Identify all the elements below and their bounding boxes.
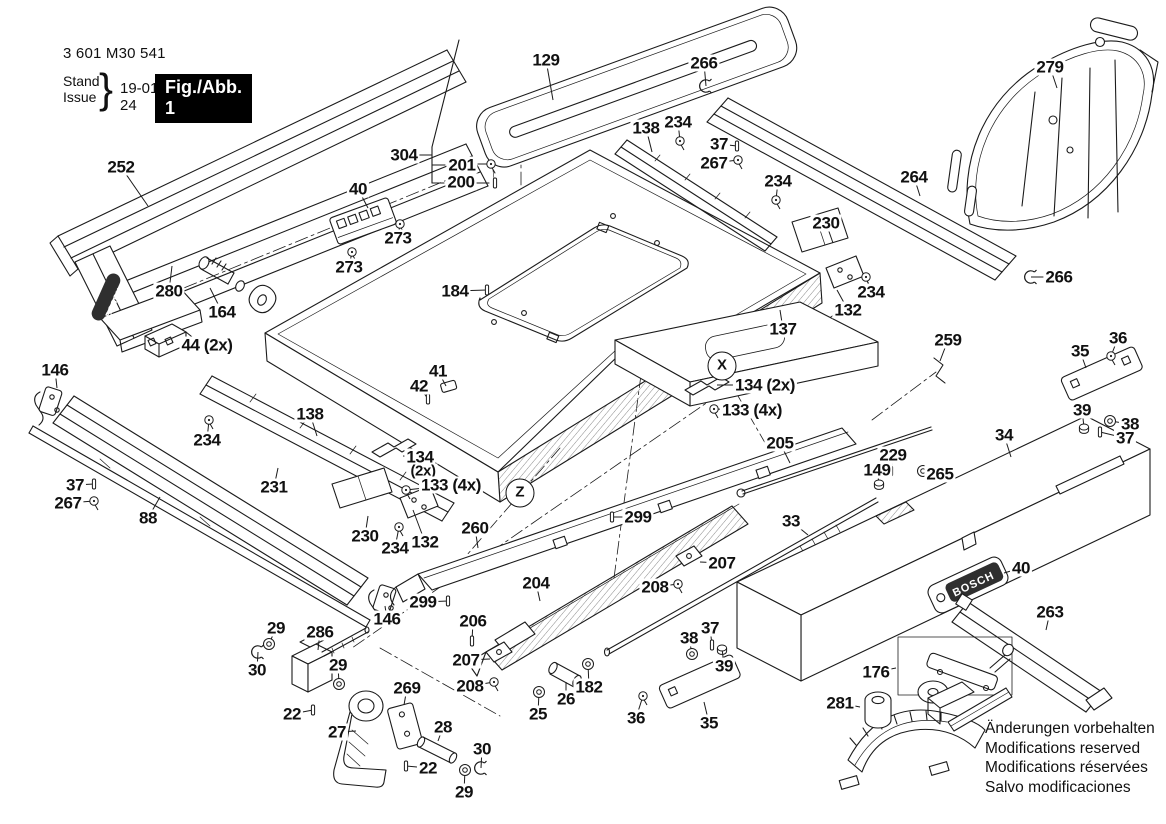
- note-en: Modifications reserved: [985, 739, 1155, 759]
- leader-line: [1050, 67, 1057, 88]
- leader-line: [914, 177, 920, 196]
- brace-glyph: }: [99, 65, 113, 113]
- leader-line: [837, 290, 848, 310]
- screw-glyph: [772, 196, 780, 209]
- leader-line: [466, 659, 490, 660]
- screw-glyph: [396, 220, 404, 233]
- note-de: Änderungen vorbehalten: [985, 719, 1155, 739]
- leader-line: [121, 167, 148, 206]
- document-part-number: 3 601 M30 541: [63, 45, 166, 62]
- screw-glyph: [395, 523, 403, 536]
- screw-glyph: [348, 248, 356, 261]
- screw-glyph: [90, 497, 98, 510]
- leader-line: [413, 510, 425, 542]
- pin-glyph: [92, 479, 95, 489]
- leader-line: [438, 727, 443, 741]
- leader-line: [1080, 351, 1086, 368]
- screw-glyph: [862, 273, 870, 286]
- leader-line: [646, 128, 652, 152]
- revision-notes: Änderungen vorbehalten Modifications res…: [985, 719, 1155, 797]
- leader-line: [1046, 612, 1050, 630]
- leader-line: [876, 668, 896, 672]
- nut-glyph: [717, 645, 726, 654]
- leader-line: [406, 766, 428, 768]
- exploded-parts-diagram: BOSCH: [0, 0, 1166, 824]
- leader-line: [714, 409, 752, 410]
- pin-glyph: [610, 512, 613, 522]
- screw-glyph: [674, 580, 682, 593]
- screw-glyph: [490, 678, 498, 691]
- leader-line: [475, 528, 478, 548]
- figure-label: Fig./Abb. 1: [155, 74, 252, 123]
- leader-line: [75, 484, 94, 485]
- pin-glyph: [311, 705, 314, 715]
- washer-glyph: [264, 639, 275, 650]
- leader-line: [780, 443, 790, 463]
- washer-glyph: [918, 466, 929, 477]
- washer-glyph: [334, 679, 345, 690]
- screw-glyph: [710, 405, 718, 418]
- leader-line: [438, 371, 446, 386]
- leader-line: [1004, 435, 1011, 457]
- screw-glyph: [205, 416, 213, 429]
- leader-line: [310, 414, 317, 436]
- leader-line: [423, 601, 448, 602]
- leader-line: [826, 223, 833, 243]
- pin-glyph: [889, 466, 892, 476]
- leader-line: [169, 266, 172, 291]
- leader-line: [358, 189, 368, 208]
- pin-glyph: [485, 285, 488, 295]
- leader-line: [780, 310, 783, 329]
- note-es: Salvo modificaciones: [985, 778, 1155, 798]
- leader-line: [365, 516, 368, 536]
- leader-line: [704, 702, 709, 723]
- pin-glyph: [404, 761, 407, 771]
- note-fr: Modifications réservées: [985, 758, 1155, 778]
- washer-glyph: [1105, 416, 1116, 427]
- leader-line: [1004, 568, 1021, 573]
- pin-glyph: [1098, 427, 1101, 437]
- leader-lines-layer: [0, 0, 1166, 824]
- leader-line: [481, 749, 482, 768]
- leader-line: [257, 652, 258, 670]
- leader-line: [940, 340, 948, 361]
- stand-issue-label: Stand Issue: [63, 73, 100, 105]
- washer-glyph: [460, 765, 471, 776]
- washer-glyph: [534, 687, 545, 698]
- nut-glyph: [1079, 424, 1088, 433]
- pin-glyph: [426, 394, 429, 404]
- leader-line: [791, 521, 808, 535]
- leader-line: [55, 370, 57, 388]
- screw-glyph: [1107, 352, 1115, 365]
- leader-line: [546, 60, 553, 100]
- leader-line: [406, 485, 451, 490]
- leader-line: [536, 583, 540, 601]
- screw-glyph: [734, 156, 742, 169]
- clip-glyph: [475, 761, 487, 775]
- nut-glyph: [874, 480, 883, 489]
- washer-glyph: [583, 659, 594, 670]
- leader-line: [292, 710, 313, 714]
- screw-glyph: [402, 486, 410, 499]
- leader-line: [1100, 432, 1125, 438]
- leader-line: [274, 468, 278, 487]
- leader-line: [337, 731, 356, 732]
- leader-line: [840, 703, 860, 707]
- pin-glyph: [446, 596, 449, 606]
- leader-line: [700, 562, 722, 563]
- leader-line: [455, 290, 487, 291]
- leader-line: [148, 497, 160, 518]
- leader-line: [404, 688, 407, 705]
- screw-glyph: [639, 692, 647, 705]
- leader-line: [403, 456, 420, 457]
- washer-glyph: [687, 649, 698, 660]
- pin-glyph: [735, 141, 738, 151]
- pin-glyph: [710, 640, 713, 650]
- leader-line: [210, 288, 222, 312]
- pin-glyph: [470, 636, 473, 646]
- leader-line: [719, 144, 737, 146]
- screw-glyph: [676, 137, 684, 150]
- leader-line: [318, 632, 320, 650]
- leader-line: [385, 606, 387, 619]
- title-block: 3 601 M30 541 Stand Issue } 19-01-24 Fig…: [63, 45, 166, 111]
- leader-line: [704, 63, 706, 86]
